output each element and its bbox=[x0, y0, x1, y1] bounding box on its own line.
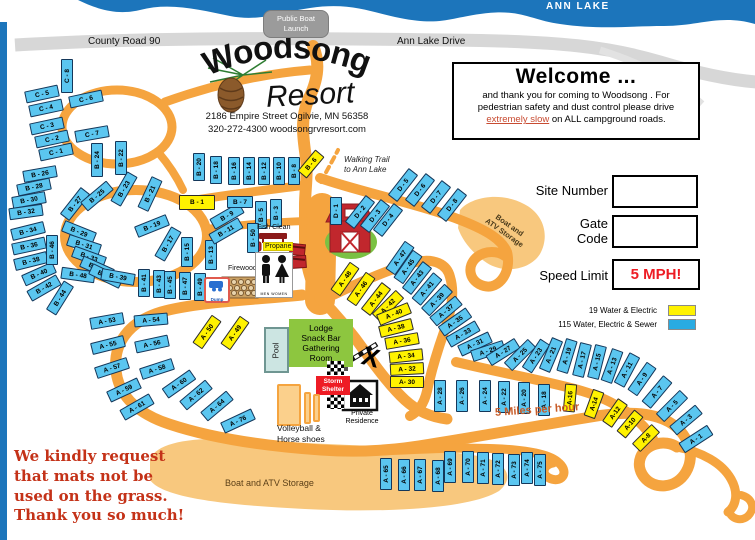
site-marker-B-3: B - 3 bbox=[270, 199, 282, 227]
grass-mat-notice: We kindly request that mats not be used … bbox=[14, 447, 184, 526]
site-marker-A-28: A - 28 bbox=[434, 380, 446, 412]
site-marker-A-71: A - 71 bbox=[477, 452, 489, 484]
site-marker-A-57: A - 57 bbox=[94, 357, 130, 379]
site-marker-B-24: B - 24 bbox=[91, 143, 103, 177]
site-number-label: Site Number bbox=[518, 183, 608, 198]
site-marker-A-24: A - 24 bbox=[479, 380, 491, 412]
site-marker-B-41: B - 41 bbox=[138, 269, 150, 297]
fish-clean-label: Fish Clean bbox=[257, 224, 290, 231]
firewood-label: Firewood bbox=[228, 265, 257, 272]
welcome-line1: and thank you for coming to Woodsong . F… bbox=[454, 90, 698, 102]
gate-code-label: Gate Code bbox=[558, 217, 608, 247]
site-marker-B-7: B - 7 bbox=[227, 196, 253, 208]
welcome-title: Welcome ... bbox=[454, 65, 698, 89]
horseshoe-pit-2 bbox=[313, 394, 320, 422]
site-marker-B-17: B - 17 bbox=[154, 226, 181, 261]
site-marker-A-75: A - 75 bbox=[534, 454, 546, 486]
dump-trailer-icon bbox=[207, 279, 227, 292]
volleyball-court bbox=[277, 384, 301, 426]
pool: Pool bbox=[264, 327, 289, 373]
dump-label: Dump bbox=[206, 297, 228, 302]
site-marker-B-21: B - 21 bbox=[137, 176, 162, 212]
restroom-text: MEN WOMEN bbox=[256, 292, 292, 296]
site-marker-A-8: A-8 bbox=[632, 424, 660, 452]
site-marker-A-65: A - 65 bbox=[380, 458, 392, 490]
resort-address: 2186 Empire Street Ogilvie, MN 56358 bbox=[186, 111, 388, 122]
checker-marker-2 bbox=[327, 394, 344, 409]
restrooms-sign: MEN WOMEN bbox=[255, 252, 293, 298]
public-boat-launch-sign: Public Boat Launch bbox=[263, 10, 329, 38]
site-marker-B-15: B - 15 bbox=[181, 237, 193, 267]
site-marker-A-73: A - 73 bbox=[508, 454, 520, 486]
site-marker-B-23: B - 23 bbox=[110, 171, 137, 206]
site-marker-A-66: A - 66 bbox=[398, 459, 410, 491]
site-marker-A-53: A - 53 bbox=[89, 312, 125, 330]
site-marker-B-18: B - 18 bbox=[210, 156, 222, 184]
site-marker-A-74: A - 74 bbox=[521, 452, 533, 484]
site-marker-B-20: B - 20 bbox=[193, 153, 205, 181]
checker-marker-1 bbox=[327, 361, 344, 375]
site-marker-A-70: A - 70 bbox=[462, 451, 474, 483]
pool-label: Pool bbox=[272, 342, 281, 358]
storm-shelter: Storm Shelter bbox=[316, 376, 350, 395]
site-marker-D-1: D - 1 bbox=[330, 197, 342, 225]
site-marker-A-54: A - 54 bbox=[134, 313, 169, 328]
site-marker-B-16: B - 16 bbox=[228, 157, 240, 185]
ann-lake-drive-label: Ann Lake Drive bbox=[397, 36, 465, 47]
site-marker-B-22: B - 22 bbox=[115, 141, 127, 175]
private-residence-label: Private Residence bbox=[340, 410, 384, 427]
site-marker-A-14: A-14 bbox=[584, 389, 605, 419]
site-marker-A-69: A - 69 bbox=[444, 451, 456, 483]
recreation-label: Volleyball & Horse shoes bbox=[277, 423, 325, 444]
site-marker-B-12: B - 12 bbox=[258, 157, 270, 185]
lake-name-label: ANN LAKE bbox=[546, 1, 636, 12]
gate-code-box[interactable] bbox=[612, 215, 698, 248]
resort-contact: 320-272-4300 woodsongrvresort.com bbox=[186, 124, 388, 135]
site-marker-B-6: B - 6 bbox=[297, 149, 324, 178]
propane-label: Propane bbox=[263, 242, 293, 251]
welcome-box: Welcome ... and thank you for coming to … bbox=[452, 62, 700, 140]
site-marker-A-61: A - 61 bbox=[119, 393, 154, 420]
dump-station-sign: Dump bbox=[204, 277, 230, 303]
site-marker-A-55: A - 55 bbox=[90, 335, 126, 355]
legend-full-hookup-label: 115 Water, Electric & Sewer bbox=[542, 320, 657, 329]
site-marker-A-50: A - 50 bbox=[192, 315, 221, 350]
lodge-building: Lodge Snack Bar Gathering Room bbox=[289, 319, 353, 367]
site-marker-B-46: B - 46 bbox=[46, 235, 58, 265]
site-marker-C-7: C - 7 bbox=[74, 125, 110, 143]
site-marker-A-72: A - 72 bbox=[492, 453, 504, 485]
county-road-label: County Road 90 bbox=[88, 36, 160, 47]
legend-swatch-wes bbox=[668, 319, 696, 330]
site-marker-A-58: A - 58 bbox=[139, 358, 175, 380]
site-number-box[interactable] bbox=[612, 175, 698, 208]
legend-water-electric-label: 19 Water & Electric bbox=[555, 306, 657, 315]
site-marker-A-68: A - 68 bbox=[432, 460, 444, 492]
restroom-figures-icon bbox=[256, 253, 292, 287]
site-marker-A-26: A - 26 bbox=[456, 380, 468, 412]
site-marker-A-67: A - 67 bbox=[414, 459, 426, 491]
site-marker-C-6: C - 6 bbox=[68, 90, 104, 109]
site-marker-B-13: B - 13 bbox=[205, 240, 217, 270]
welcome-emphasis: extremely slow bbox=[486, 114, 549, 125]
campground-map: Woodsong Resort C - 8C - 5C - 6C - 4C - … bbox=[0, 0, 755, 540]
site-marker-B-10: B - 10 bbox=[273, 157, 285, 185]
speed-limit-box: 5 MPH! bbox=[612, 259, 700, 290]
speed-limit-label: Speed Limit bbox=[528, 268, 608, 283]
site-marker-C-8: C - 8 bbox=[61, 59, 73, 93]
site-marker-B-39: B - 39 bbox=[100, 268, 136, 286]
site-marker-B-45: B - 45 bbox=[164, 271, 176, 299]
welcome-line2: pedestrian safety and dust control pleas… bbox=[454, 102, 698, 114]
horseshoe-pit-1 bbox=[304, 392, 311, 424]
site-marker-B-1: B - 1 bbox=[179, 195, 215, 210]
boat-atv-storage-lower-label: Boat and ATV Storage bbox=[225, 478, 314, 488]
site-marker-A-32: A - 32 bbox=[390, 362, 425, 376]
site-marker-B-14: B - 14 bbox=[243, 157, 255, 185]
site-marker-A-56: A - 56 bbox=[134, 335, 170, 354]
legend-swatch-we bbox=[668, 305, 696, 316]
site-marker-B-19: B - 19 bbox=[134, 214, 170, 238]
site-marker-A-49: A - 49 bbox=[220, 316, 249, 351]
walking-trail-label: Walking Trail to Ann Lake bbox=[344, 155, 390, 175]
welcome-line3: extremely slow on ALL campground roads. bbox=[454, 114, 698, 126]
site-marker-A-76: A - 76 bbox=[220, 408, 256, 433]
site-marker-B-47: B - 47 bbox=[179, 272, 191, 300]
site-marker-A-30: A- 30 bbox=[390, 376, 424, 388]
